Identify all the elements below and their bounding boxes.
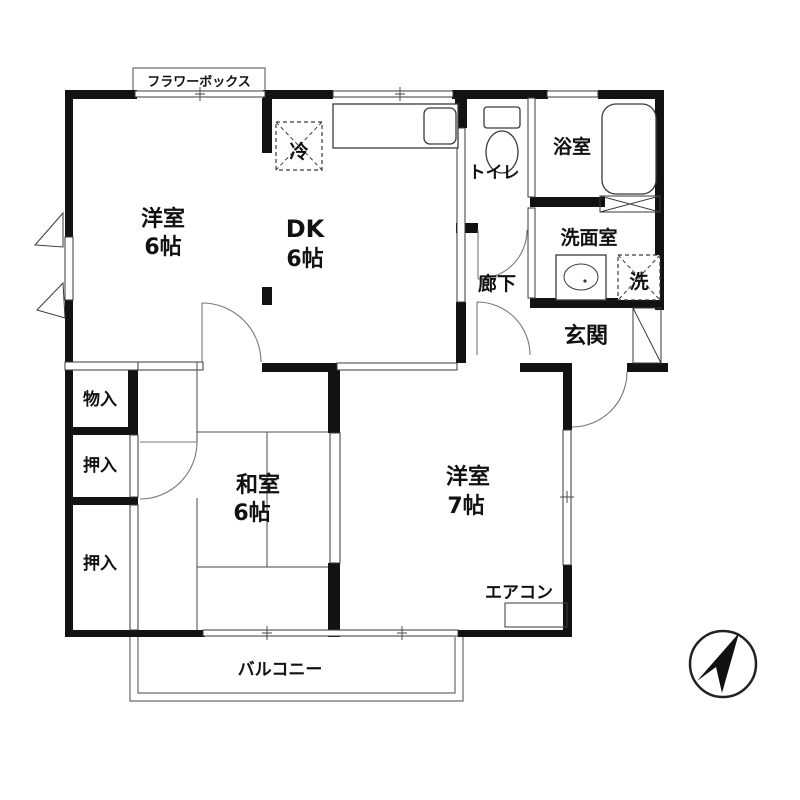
entrance-label: 玄関 [564,323,608,349]
room-west1-size: 6帖 [144,235,181,260]
room-japanese-size: 6帖 [233,501,270,526]
air-conditioner-unit [505,603,567,627]
casement-window-icon [35,213,65,318]
refrigerator-label: 冷 [289,140,308,163]
room-dk-size: 6帖 [286,247,323,272]
room-west1-name: 洋室 [141,206,185,232]
washroom-label: 洗面室 [560,226,617,249]
kitchen-sink-icon [424,108,456,144]
window-balcony [203,630,458,636]
closet-lower-label: 押入 [83,553,117,574]
floor-plan-drawing: フラワーボックス 洋室 6帖 DK 6帖 冷 トイレ 浴室 洗面室 洗 廊下 玄… [0,0,800,800]
door-toilet [478,230,527,279]
room-dk-name: DK [286,215,326,243]
shoe-cabinet-icon [633,308,661,363]
bathtub-icon [600,104,660,212]
closet-upper-label: 押入 [83,455,117,476]
storage-label: 物入 [83,389,117,410]
north-arrow-icon [690,631,756,697]
window-bath-top [547,91,598,97]
toilet-label: トイレ [469,163,520,183]
balcony-label: バルコニー [238,660,323,680]
window-dk-top [333,91,453,97]
sliding-door-japanese-west2 [330,433,340,563]
room-west2-size: 7帖 [447,494,484,519]
air-conditioner-label: エアコン [485,583,553,603]
door-japanese [140,442,197,499]
door-hallway-west2 [477,302,530,355]
closet-upper-fusuma [130,435,138,497]
window-west1-left [65,237,73,300]
hallway-label: 廊下 [478,272,516,295]
floor-plan-canvas: フラワーボックス 洋室 6帖 DK 6帖 冷 トイレ 浴室 洗面室 洗 廊下 玄… [0,0,800,800]
room-japanese-name: 和室 [236,472,280,498]
washer-label: 洗 [629,270,648,293]
bathroom-label: 浴室 [553,135,591,158]
closet-lower-fusuma [130,505,138,630]
flower-box-label: フラワーボックス [147,74,251,90]
room-west2-name: 洋室 [446,464,490,490]
door-west1 [202,303,261,362]
sink-icon [556,255,606,300]
door-entrance [572,372,627,427]
sliding-door-dk-west2 [337,363,457,370]
